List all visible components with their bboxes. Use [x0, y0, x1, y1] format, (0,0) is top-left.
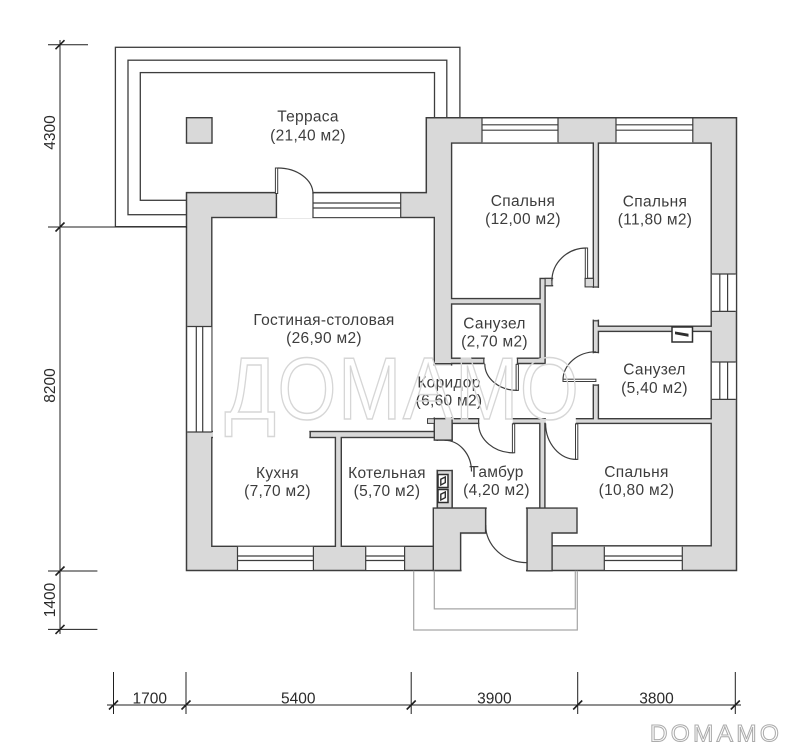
svg-text:3800: 3800 [639, 691, 674, 708]
svg-text:5400: 5400 [281, 691, 316, 708]
svg-text:Санузел: Санузел [623, 362, 685, 379]
svg-text:1400: 1400 [42, 582, 59, 617]
svg-text:(5,70 м2): (5,70 м2) [354, 483, 421, 500]
svg-text:1700: 1700 [132, 691, 167, 708]
svg-text:(12,00 м2): (12,00 м2) [485, 211, 561, 228]
svg-text:DOMAMO: DOMAMO [650, 721, 782, 748]
svg-text:Спальня: Спальня [604, 464, 668, 481]
svg-text:8200: 8200 [42, 368, 59, 403]
svg-text:Спальня: Спальня [623, 194, 687, 211]
svg-text:Гостиная-столовая: Гостиная-столовая [253, 312, 394, 329]
svg-text:(5,40 м2): (5,40 м2) [621, 380, 688, 397]
svg-text:(11,80 м2): (11,80 м2) [618, 212, 693, 229]
svg-text:Тамбур: Тамбур [469, 464, 523, 481]
svg-text:Спальня: Спальня [491, 193, 555, 210]
svg-text:Санузел: Санузел [463, 316, 525, 333]
svg-text:Терраса: Терраса [277, 109, 339, 126]
svg-text:Котельная: Котельная [348, 465, 426, 482]
svg-text:ДОМАМО: ДОМАМО [225, 341, 581, 439]
svg-text:Кухня: Кухня [256, 465, 299, 482]
svg-text:(10,80 м2): (10,80 м2) [599, 482, 675, 499]
svg-text:(7,70 м2): (7,70 м2) [244, 483, 311, 500]
svg-text:(21,40 м2): (21,40 м2) [270, 128, 346, 145]
svg-text:4300: 4300 [42, 115, 59, 150]
svg-text:3900: 3900 [477, 691, 512, 708]
svg-text:(4,20 м2): (4,20 м2) [463, 482, 530, 499]
